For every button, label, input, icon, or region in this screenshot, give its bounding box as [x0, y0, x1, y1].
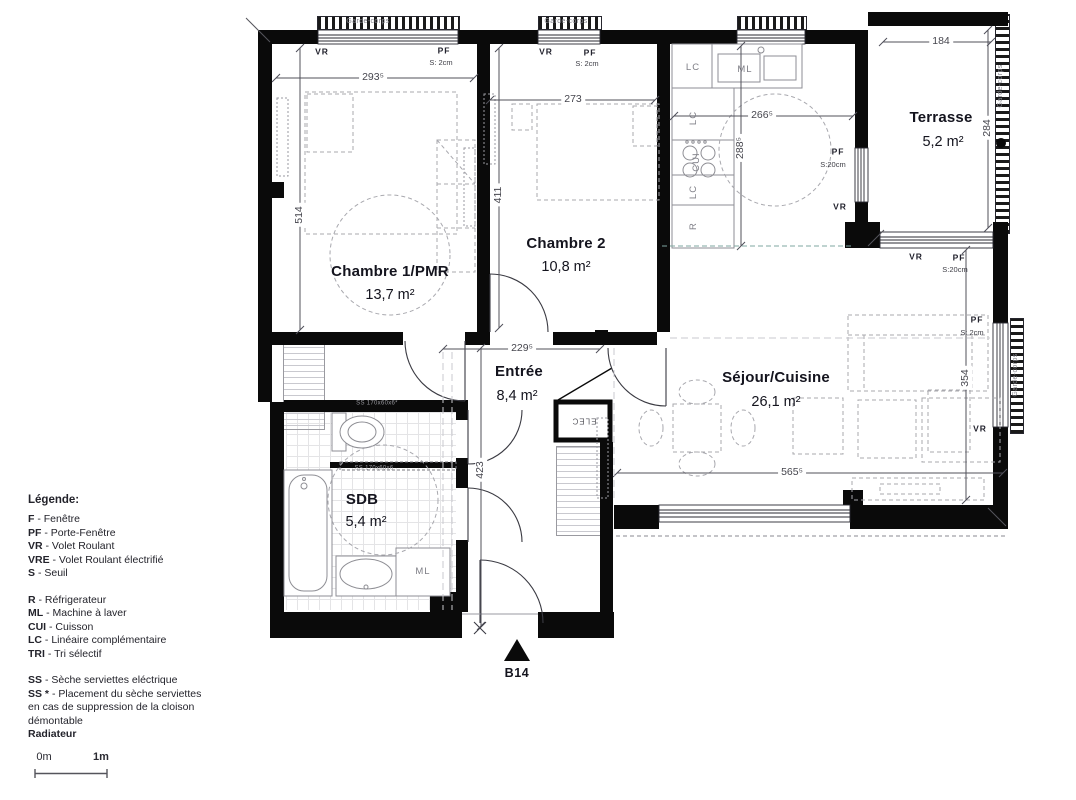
dim-ch1-width: 293⁵ — [359, 72, 387, 84]
room-name-terrasse: Terrasse — [909, 110, 972, 127]
legend-item-lc: LC - Linéaire complémentaire — [28, 634, 208, 648]
room-area-sejour: 26,1 m² — [751, 395, 800, 411]
seuil-label-east: S: 2cm — [960, 329, 983, 337]
legend: Légende: F - Fenêtre PF - Porte-Fenêtre … — [28, 494, 208, 742]
legend-item-ss-star: SS * - Placement du sèche serviettes en … — [28, 688, 208, 729]
legend-title: Légende: — [28, 494, 208, 506]
scale-bar — [35, 769, 107, 778]
legend-item-vr: VR - Volet Roulant — [28, 540, 208, 554]
room-name-entree: Entrée — [495, 364, 543, 381]
guardrail-label-east: Garde-corps — [1012, 353, 1020, 396]
room-area-chambre2: 10,8 m² — [541, 260, 590, 276]
legend-item-s: S - Seuil — [28, 567, 208, 581]
seuil-label-kitchen-terrasse: S:20cm — [820, 161, 845, 169]
vr-label-terrasse-south: VR — [909, 252, 923, 261]
fridge-label: R — [689, 222, 699, 230]
legend-item-tri: TRI - Tri sélectif — [28, 648, 208, 662]
dim-terrasse-height: 284 — [982, 116, 994, 140]
dim-sejour-width: 565⁵ — [778, 467, 806, 479]
vr-label-east: VR — [973, 424, 987, 433]
vr-label-ch1: VR — [315, 47, 329, 56]
floorplan-page: { "plan": { "rooms": [ {"name": "Chambre… — [0, 0, 1076, 800]
vr-label-ch2: VR — [539, 47, 553, 56]
seuil-label-ch2: S: 2cm — [575, 60, 598, 68]
legend-item-radiateur: Radiateur — [28, 728, 208, 742]
room-name-chambre1: Chambre 1/PMR — [331, 264, 449, 281]
room-area-terrasse: 5,2 m² — [922, 135, 963, 151]
pf-label-kitchen-terrasse: PF — [832, 147, 845, 156]
dim-ch1-height: 514 — [294, 203, 306, 227]
room-name-chambre2: Chambre 2 — [526, 236, 605, 253]
room-area-entree: 8,4 m² — [496, 389, 537, 405]
pf-label-terrasse-south: PF — [953, 253, 966, 262]
vr-label-kitchen-terrasse: VR — [833, 202, 847, 211]
dim-terrasse-width: 184 — [929, 36, 953, 48]
guardrail-label-ch2: Garde-corps — [544, 18, 587, 26]
dim-kitchen-width: 266⁵ — [748, 110, 776, 122]
ml-label-kitchen: ML — [737, 65, 752, 75]
dim-ch2-width: 273 — [561, 94, 585, 106]
legend-item-cui: CUI - Cuisson — [28, 621, 208, 635]
room-area-chambre1: 13,7 m² — [365, 288, 414, 304]
lc-label-top: LC — [686, 63, 700, 73]
dimension-lines — [272, 26, 1007, 630]
guardrail-label-terrasse: Garde-corps — [997, 64, 1005, 107]
furniture — [305, 92, 1000, 555]
legend-item-ss: SS - Sèche serviettes eléctrique — [28, 674, 208, 688]
guardrail-label-ch1: Garde-corps — [346, 18, 389, 26]
room-area-sdb: 5,4 m² — [345, 515, 386, 531]
unit-label: B14 — [505, 667, 530, 681]
room-name-sejour: Séjour/Cuisine — [722, 370, 830, 387]
ml-label-sdb: ML — [415, 567, 430, 577]
pf-label-ch2: PF — [584, 48, 597, 57]
dim-entree-height: 423 — [475, 458, 487, 482]
elec-cabinet — [556, 368, 612, 440]
pf-label-east: PF — [971, 315, 984, 324]
ss-label-wc: SS 170x60x6* — [356, 401, 398, 408]
seuil-label-ch1: S: 2cm — [429, 59, 452, 67]
legend-item-pf: PF - Porte-Fenêtre — [28, 527, 208, 541]
seuil-label-terrasse-south: S:20cm — [942, 266, 967, 274]
legend-item-vre: VRE - Volet Roulant électrifié — [28, 554, 208, 568]
lc-label-low: LC — [689, 185, 699, 199]
dim-kitchen-height: 288⁵ — [735, 134, 747, 162]
legend-item-r: R - Réfrigerateur — [28, 594, 208, 608]
scale-end-label: 1m — [93, 751, 109, 763]
dim-ch2-height: 411 — [493, 184, 505, 207]
ss-label-sdb: SS 170x60x6 — [355, 466, 394, 473]
entrance-arrow — [504, 639, 530, 661]
dim-sejour-height: 354 — [960, 366, 972, 390]
legend-item-ml: ML - Machine à laver — [28, 607, 208, 621]
elec-label: ELEC — [572, 417, 597, 426]
legend-item-f: F - Fenêtre — [28, 513, 208, 527]
lc-label-mid: LC — [689, 111, 699, 125]
scale-start-label: 0m — [36, 751, 51, 763]
dim-entree-width: 229⁵ — [508, 343, 536, 355]
cui-label: CUI — [692, 152, 702, 171]
room-name-sdb: SDB — [346, 492, 378, 509]
pf-label-ch1: PF — [438, 46, 451, 55]
